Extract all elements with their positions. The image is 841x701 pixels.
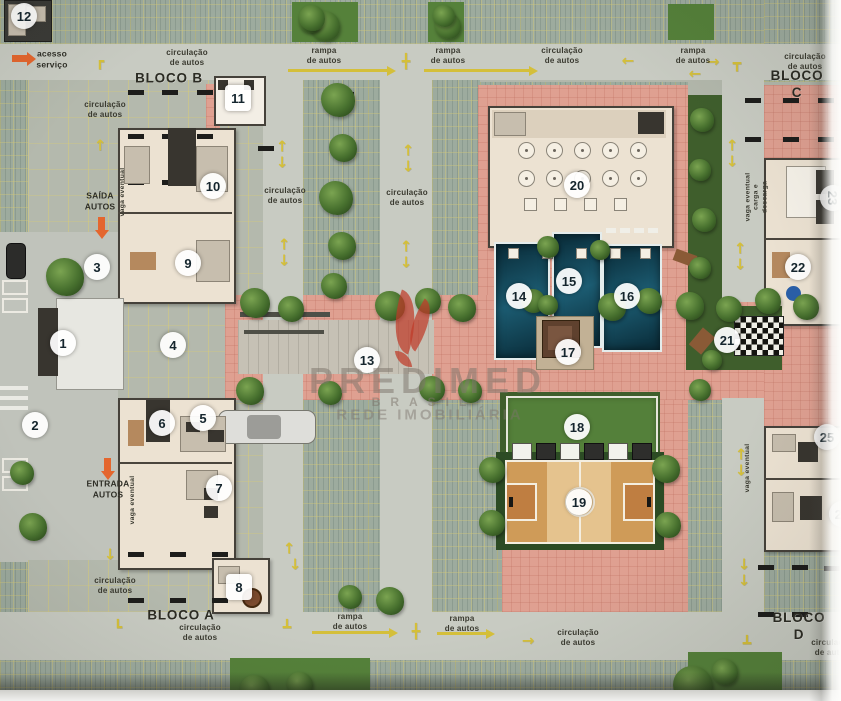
grass-top-2 bbox=[428, 2, 464, 42]
grass-top-3 bbox=[668, 4, 714, 40]
site-plan-photo: ╋╋→←←┳┏↑↑↓↑↓↑↓↑↓↓↑↓┗┻→┻↑↓↑↓↑↓↓↓ circulaç… bbox=[0, 0, 841, 701]
page-bottom-edge bbox=[0, 690, 841, 701]
court-center-circle bbox=[565, 487, 595, 517]
court-pad bbox=[496, 452, 664, 550]
hedge-right bbox=[688, 95, 722, 307]
bloco-b-building bbox=[118, 128, 236, 304]
pool-hut-roof bbox=[548, 326, 572, 350]
basketball-court-19 bbox=[505, 460, 655, 544]
bloco-c-building bbox=[764, 158, 841, 326]
crosswalk bbox=[0, 386, 28, 416]
saida-autos-arrow-icon bbox=[98, 217, 105, 230]
car-roof bbox=[247, 415, 281, 439]
tower-core-11 bbox=[214, 76, 266, 126]
hoop-right bbox=[647, 497, 651, 507]
bloco-d-building bbox=[764, 426, 841, 552]
driveway-entry bbox=[28, 232, 118, 560]
entrada-autos-arrow-icon bbox=[104, 458, 111, 471]
service-building-12 bbox=[4, 0, 52, 42]
grass-top-1 bbox=[292, 2, 358, 42]
watermark-tagline: REDE IMOBILIÁRIA bbox=[336, 407, 523, 424]
hoop-left bbox=[509, 497, 513, 507]
acesso-servico-arrow-icon bbox=[12, 55, 27, 62]
parking-center-upper bbox=[432, 80, 480, 296]
gatehouse-panel bbox=[38, 308, 58, 376]
giant-chessboard bbox=[734, 316, 784, 356]
parking-right-lower bbox=[686, 380, 722, 612]
spa-room-8 bbox=[212, 558, 270, 614]
pool-16 bbox=[602, 244, 662, 352]
road-right-lower bbox=[722, 398, 764, 612]
party-hall-20 bbox=[488, 106, 674, 248]
entrance-lobby-1 bbox=[56, 298, 124, 390]
parking-strip-top bbox=[0, 0, 841, 44]
car-entry-drive bbox=[218, 410, 316, 444]
road-right-upper bbox=[722, 80, 764, 302]
parked-car bbox=[6, 243, 26, 279]
